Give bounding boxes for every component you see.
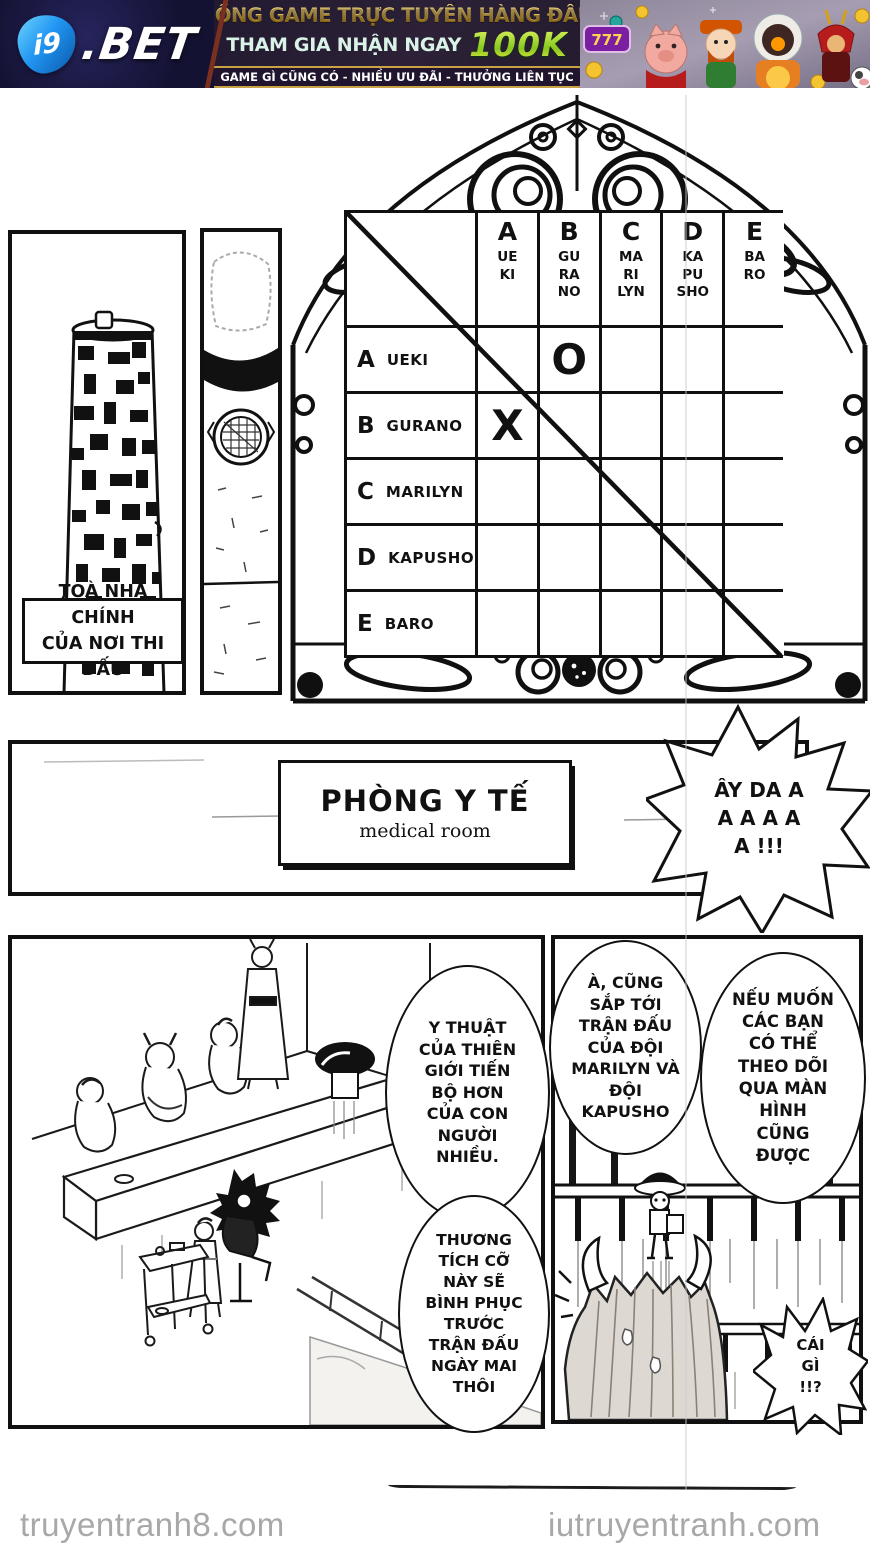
sketch-ticks [216, 488, 268, 572]
cell-c-a [478, 460, 537, 523]
cell-d-a [478, 526, 537, 589]
row-header-b: BGURANO [347, 394, 475, 457]
slot-777-icon: 777 [584, 26, 630, 52]
row-header-e: EBARO [347, 592, 475, 655]
cell-c-d [663, 460, 722, 523]
banner-characters-svg: 777 [580, 0, 870, 88]
col-header-a: AUE KI [478, 213, 537, 325]
robed-figure [238, 939, 288, 1089]
ad-banner[interactable]: i9 .BET CỔNG GAME TRỰC TUYẾN HÀNG ĐẦU TH… [0, 0, 870, 88]
scream-text: ÂY DA A A A A A A !!! [646, 703, 870, 933]
medical-room-sign: PHÒNG Y TẾ medical room [278, 760, 572, 866]
cell-b-c [602, 394, 661, 457]
cell-e-e [725, 592, 784, 655]
row-header-d: DKAPUSHO [347, 526, 475, 589]
recovery-bubble: THƯƠNG TÍCH CỠ NÀY SẼ BÌNH PHỤC TRƯỚC TR… [398, 1195, 550, 1433]
col-header-e: EBA RO [725, 213, 784, 325]
cell-d-d [663, 526, 722, 589]
logo-bet-text: .BET [78, 19, 199, 70]
col-header-c: CMA RI LYN [602, 213, 661, 325]
cell-c-b [540, 460, 599, 523]
cell-e-a [478, 592, 537, 655]
svg-text:777: 777 [591, 31, 622, 49]
bottom-rosette-ornament [297, 653, 861, 698]
sign-title: PHÒNG Y TẾ [320, 784, 529, 818]
cell-c-e [725, 460, 784, 523]
ad-headline: CỔNG GAME TRỰC TUYẾN HÀNG ĐẦU [201, 4, 593, 27]
watch-bubble: NẾU MUỐN CÁC BẠN CÓ THỂ THEO DÕI QUA MÀN… [700, 952, 866, 1204]
logo-i9-text: i9 [32, 26, 61, 61]
cell-a-c [602, 328, 661, 391]
row-header-c: CMARILYN [347, 460, 475, 523]
surprised-head [555, 1236, 727, 1420]
win-mark: O [551, 339, 587, 381]
cell-d-b [540, 526, 599, 589]
loss-mark: X [491, 405, 523, 447]
ad-text-area[interactable]: CỔNG GAME TRỰC TUYẾN HÀNG ĐẦU THAM GIA N… [214, 0, 580, 88]
page-edge-shadow [388, 1485, 796, 1496]
cell-e-c [602, 592, 661, 655]
cell-c-c [602, 460, 661, 523]
cell-d-e [725, 526, 784, 589]
ashtray [115, 1175, 133, 1183]
i9bet-logo-icon: i9 [14, 11, 80, 77]
cell-b-a: X [478, 394, 537, 457]
ad-logo-area[interactable]: i9 .BET [0, 0, 214, 88]
building-caption: TOÀ NHÀ CHÍNH CỦA NƠI THI ĐẤU [22, 598, 184, 664]
cell-b-b [540, 394, 599, 457]
cell-b-e [725, 394, 784, 457]
sign-subtitle: medical room [359, 820, 491, 842]
ad-characters-art: 777 [580, 0, 870, 88]
ad-tagline-pill: GAME GÌ CŨNG CÓ - NHIỀU ƯU ĐÃI - THƯỞNG … [205, 66, 588, 88]
medicine-bubble: Y THUẬT CỦA THIÊN GIỚI TIẾN BỘ HƠN CỦA C… [385, 965, 550, 1220]
ad-bonus-amount: 100K [469, 25, 567, 64]
what-bubble: CÁI GÌ !!? [753, 1297, 868, 1435]
tournament-bracket-table: AUE KI BGU RA NO CMA RI LYN DKA PU SHO E… [344, 210, 783, 658]
tower-closeup-art [204, 232, 278, 691]
cell-e-d [663, 592, 722, 655]
page-fold-line [685, 95, 687, 1490]
next-match-bubble: À, CŨNG SẮP TỚI TRẬN ĐẤU CỦA ĐỘI MARILYN… [549, 940, 702, 1155]
footer-site-left[interactable]: truyentranh8.com [20, 1506, 285, 1544]
rail-posts [575, 1197, 845, 1241]
col-header-b: BGU RA NO [540, 213, 599, 325]
cow-character-icon [851, 67, 870, 88]
cell-b-d [663, 394, 722, 457]
what-text: CÁI GÌ !!? [753, 1297, 868, 1435]
col-header-d: DKA PU SHO [663, 213, 722, 325]
cell-a-b: O [540, 328, 599, 391]
pig-character-icon [645, 24, 687, 88]
cell-a-d [663, 328, 722, 391]
ad-cta-text: THAM GIA NHẬN NGAY [226, 34, 461, 56]
cell-e-b [540, 592, 599, 655]
cell-a-e [725, 328, 784, 391]
footer-site-right[interactable]: iutruyentranh.com [548, 1506, 821, 1544]
scream-bubble: ÂY DA A A A A A A !!! [646, 703, 870, 933]
astronaut-character-icon [754, 14, 802, 88]
cell-d-c [602, 526, 661, 589]
row-header-a: AUEKI [347, 328, 475, 391]
table-corner-cell [347, 213, 475, 325]
cell-a-a [478, 328, 537, 391]
panel-tower-closeup [200, 228, 282, 695]
